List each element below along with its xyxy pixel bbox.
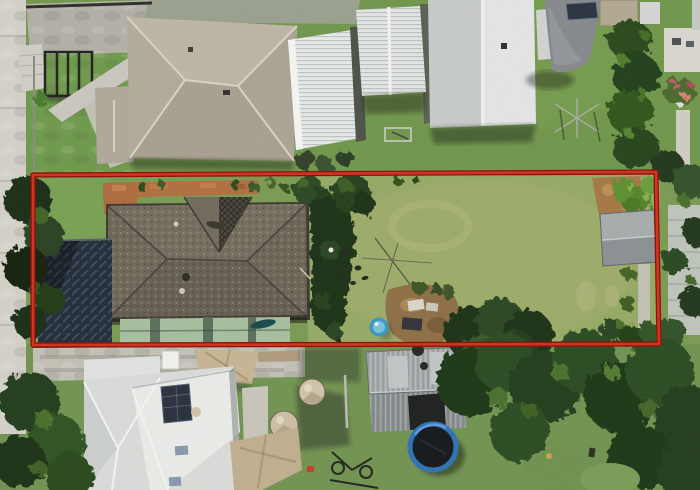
photo-grain [0,0,700,490]
aerial-photo [0,0,700,490]
